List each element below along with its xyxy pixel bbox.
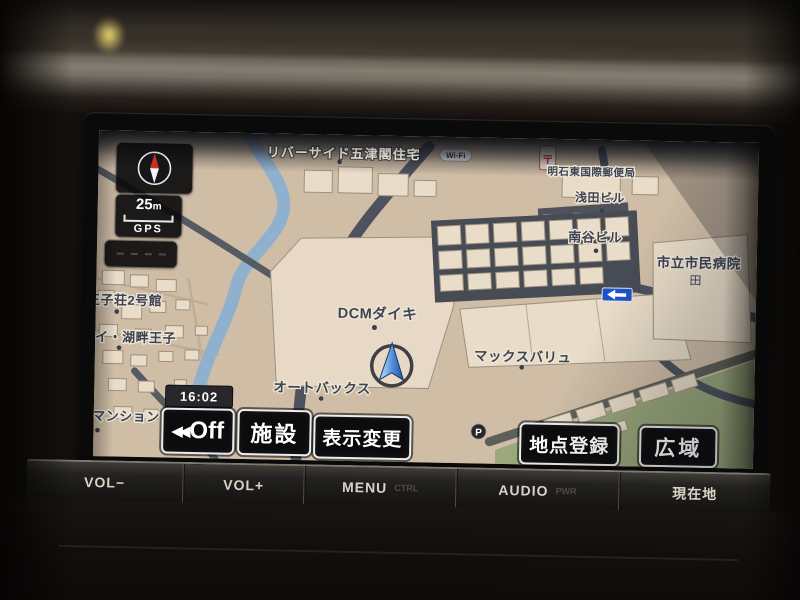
clock-display: 16:02 xyxy=(166,386,232,408)
map-label-autobacs: オートバックス xyxy=(273,380,371,397)
map-label-riverside-housing: リバーサイド五津閣住宅 xyxy=(267,144,421,162)
parking-icon: P xyxy=(471,424,486,439)
svg-text:P: P xyxy=(475,427,482,438)
map-label-ojiso-no2: 王子荘2号館 xyxy=(93,292,162,308)
audio-button[interactable]: AUDIO PWR xyxy=(455,469,618,512)
map-label-asada-building: 浅田ビル xyxy=(575,189,625,205)
hospital-mark-icon: 田 xyxy=(689,274,701,288)
compass-widget xyxy=(116,143,193,194)
compass-icon xyxy=(134,148,175,189)
dashboard-ridge xyxy=(58,545,738,561)
dashboard-photo: 〒 Wi-Fi 田 P xyxy=(0,0,800,600)
map-scale-widget[interactable]: 25m GPS xyxy=(115,195,182,238)
rewind-icon: ◀◀ xyxy=(172,422,188,439)
ctrl-sublabel: CTRL xyxy=(394,483,418,493)
map-label-mansion: イマンション xyxy=(93,408,160,425)
current-location-button[interactable]: 現在地 xyxy=(618,472,771,515)
audio-label: AUDIO xyxy=(498,482,548,499)
scale-bar xyxy=(123,215,173,223)
map-label-max-valu: マックスバリュ xyxy=(474,348,572,365)
map-label-city-hospital: 市立市民病院 xyxy=(657,254,741,272)
map-label-post-office: 明石東国際郵便局 xyxy=(547,165,635,180)
vol-up-label: VOL+ xyxy=(223,477,264,494)
map-label-minamitani-building: 南谷ビル xyxy=(568,229,622,245)
one-way-sign-icon xyxy=(602,288,632,302)
vol-down-label: VOL− xyxy=(84,474,125,491)
off-label: Off xyxy=(189,417,224,446)
map-label-dcm-daiki: DCMダイキ xyxy=(338,304,418,324)
vol-down-button[interactable]: VOL− xyxy=(26,461,183,504)
gps-status: GPS xyxy=(115,223,181,237)
map-label-kohan-oji: ーアイ・湖畔王子 xyxy=(93,329,176,346)
current-location-label: 現在地 xyxy=(672,483,717,504)
pwr-sublabel: PWR xyxy=(555,486,576,496)
vol-up-button[interactable]: VOL+ xyxy=(182,464,304,506)
display-change-button[interactable]: 表示変更 xyxy=(313,414,412,460)
info-panel xyxy=(105,240,177,267)
dashboard-lower-panel xyxy=(0,499,800,600)
wide-area-button[interactable]: 広域 xyxy=(639,426,718,468)
menu-button[interactable]: MENU CTRL xyxy=(303,466,456,509)
scale-value: 25 xyxy=(136,196,153,213)
audio-off-button[interactable]: ◀◀ Off xyxy=(161,407,235,454)
nav-screen[interactable]: 〒 Wi-Fi 田 P xyxy=(93,130,759,469)
menu-label: MENU xyxy=(342,479,388,496)
scale-unit: m xyxy=(153,201,162,212)
point-register-button[interactable]: 地点登録 xyxy=(519,422,620,466)
facility-button[interactable]: 施設 xyxy=(237,409,312,456)
